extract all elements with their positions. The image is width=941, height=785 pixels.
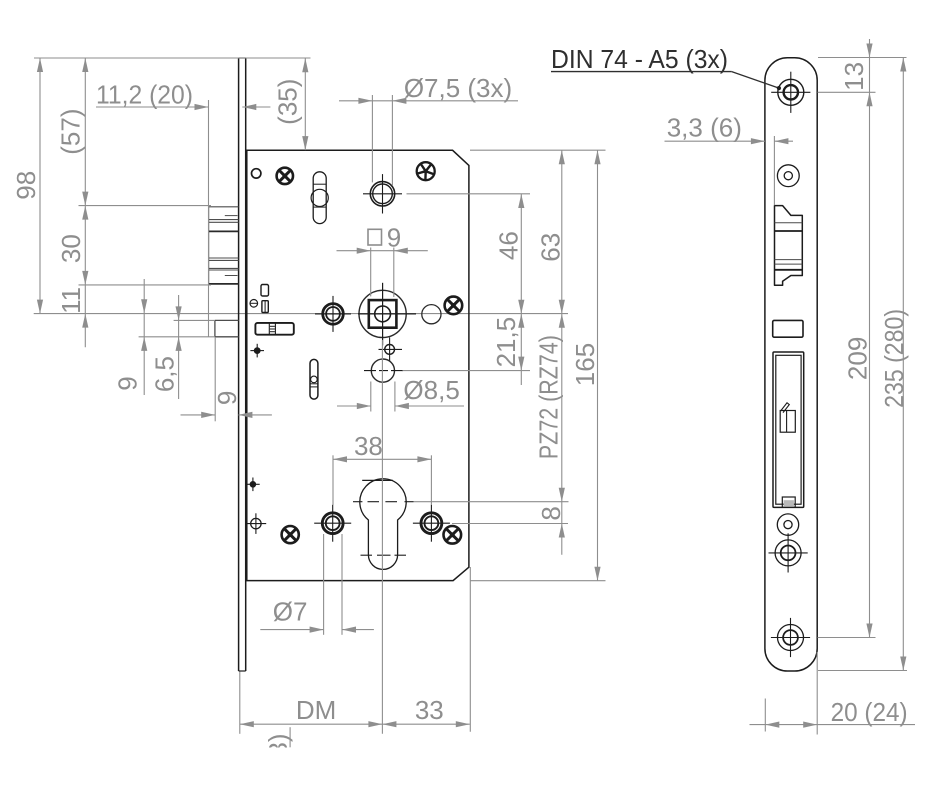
svg-text:DM: DM <box>296 695 336 725</box>
svg-text:11: 11 <box>56 287 86 314</box>
svg-text:6,5: 6,5 <box>149 356 179 392</box>
svg-text:Ø8,5: Ø8,5 <box>403 375 459 405</box>
svg-text:13: 13 <box>839 62 869 91</box>
svg-text:38: 38 <box>354 431 383 461</box>
svg-text:33: 33 <box>415 695 444 725</box>
svg-text:98: 98 <box>11 171 41 200</box>
svg-text:Ø7: Ø7 <box>273 596 308 626</box>
svg-text:3,3 (6): 3,3 (6) <box>667 113 742 143</box>
svg-text:20 (24): 20 (24) <box>831 697 908 727</box>
svg-text:8: 8 <box>536 506 566 520</box>
svg-text:209: 209 <box>842 337 872 380</box>
svg-text:PZ72 (RZ74): PZ72 (RZ74) <box>534 335 564 459</box>
svg-text:235 (280): 235 (280) <box>879 309 909 408</box>
svg-text:(57): (57) <box>56 108 86 154</box>
svg-text:9: 9 <box>212 391 242 405</box>
svg-text:30: 30 <box>56 234 86 263</box>
svg-text:21,5: 21,5 <box>491 317 521 368</box>
svg-text:Ø7,5 (3x): Ø7,5 (3x) <box>404 73 512 103</box>
svg-text:9: 9 <box>112 376 142 390</box>
svg-text:46: 46 <box>494 231 524 260</box>
svg-text:63: 63 <box>536 233 566 262</box>
svg-text:(35): (35) <box>273 79 303 125</box>
svg-text:165: 165 <box>570 343 600 386</box>
svg-text:11,2 (20): 11,2 (20) <box>96 80 193 110</box>
svg-text:DIN 74 - A5 (3x): DIN 74 - A5 (3x) <box>551 44 728 74</box>
